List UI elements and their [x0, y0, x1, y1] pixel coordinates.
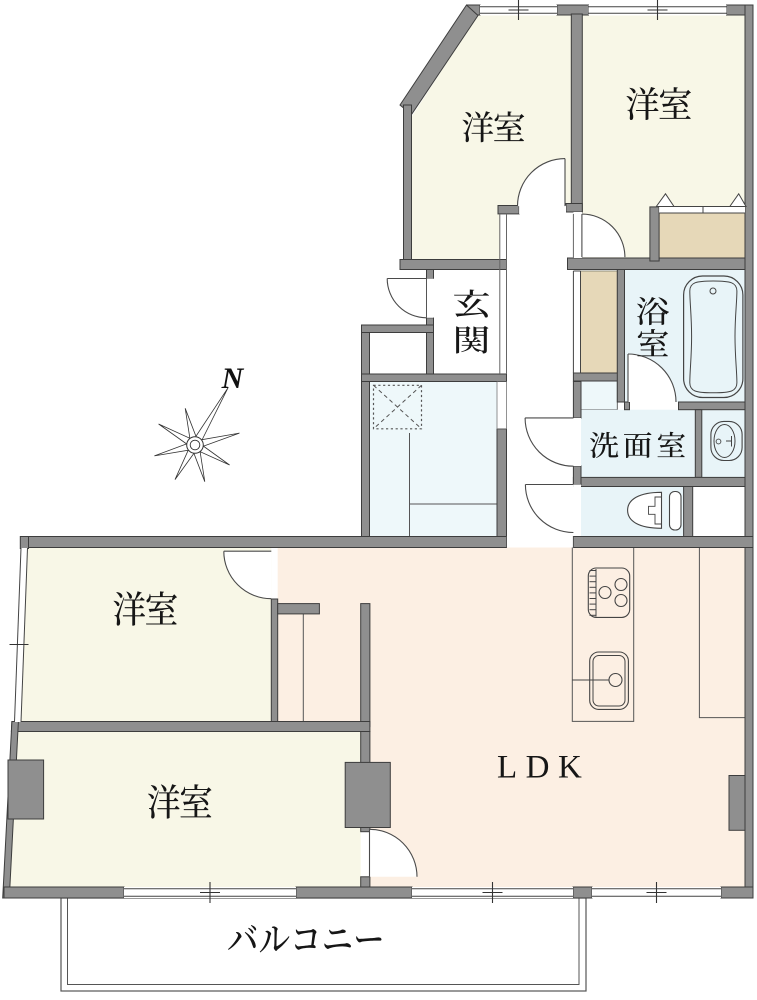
svg-text:LDK: LDK [497, 750, 590, 786]
svg-text:N: N [221, 362, 245, 395]
